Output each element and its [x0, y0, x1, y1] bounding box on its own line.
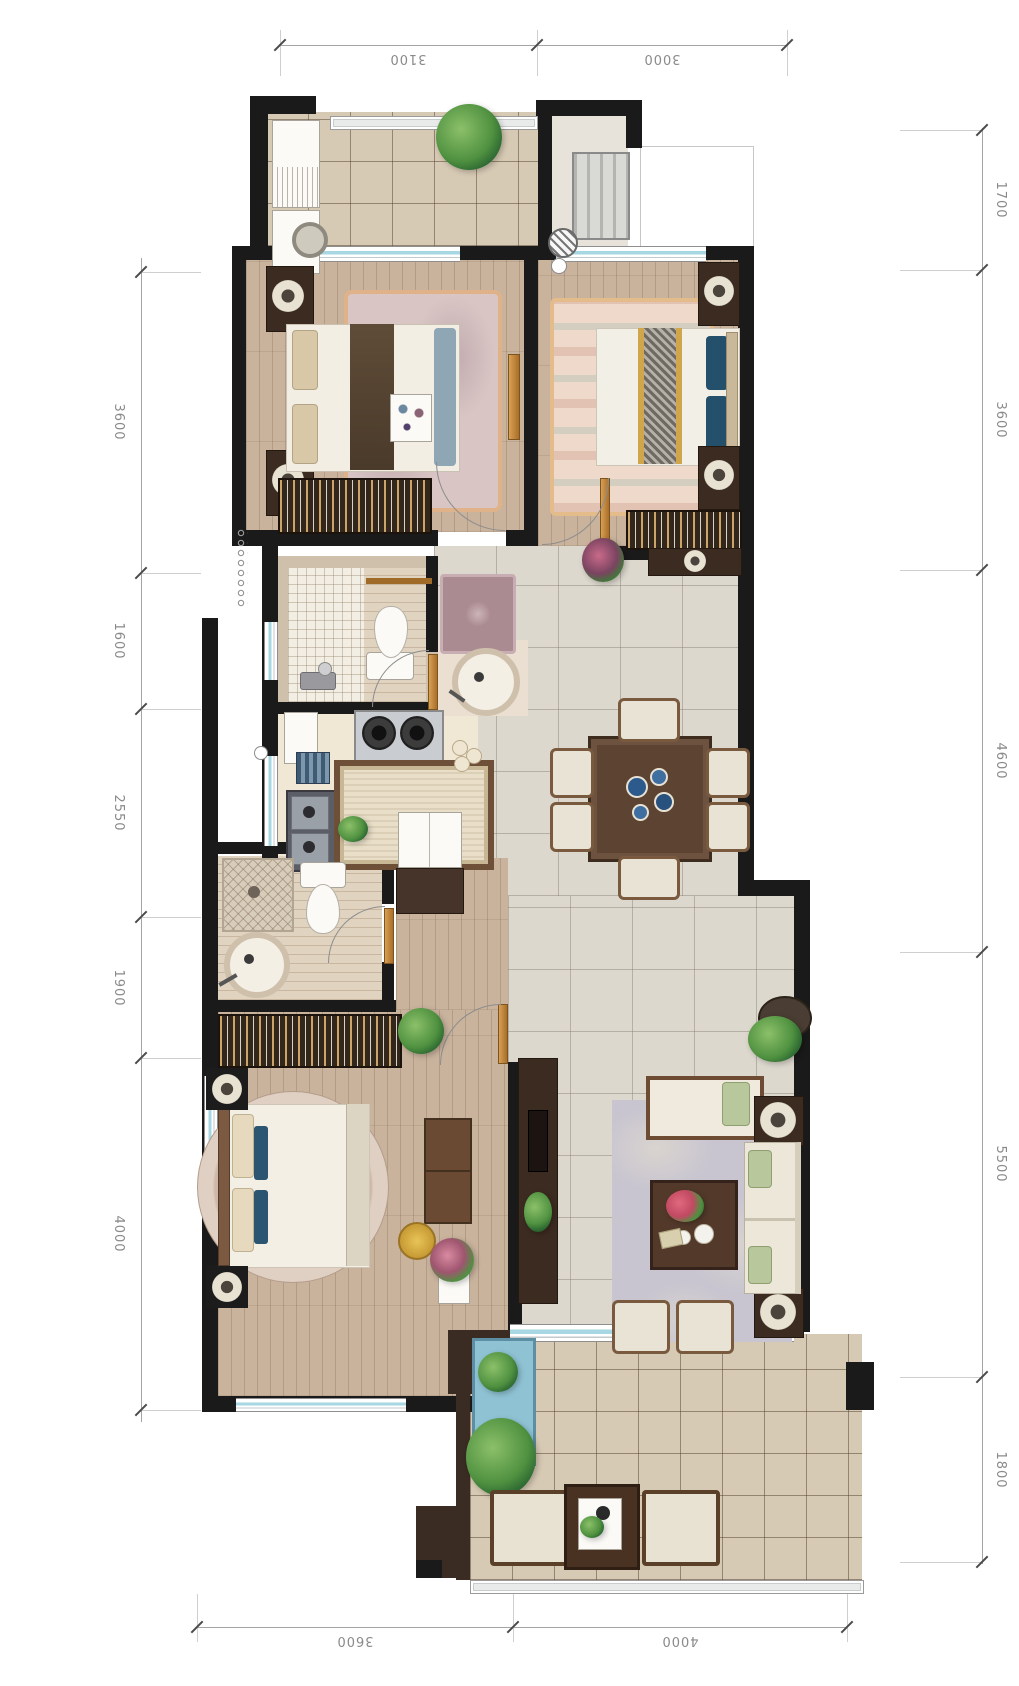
wall-pillar-se — [846, 1362, 874, 1410]
dim-ext — [537, 30, 538, 76]
dim-ext — [141, 573, 201, 574]
dim-label-3000: 3000 — [602, 50, 722, 66]
entry-porch — [640, 146, 754, 248]
kitchen-cart — [398, 812, 462, 868]
wall — [626, 100, 642, 148]
plant-north-balcony — [436, 104, 502, 170]
dining-chair — [618, 856, 680, 900]
dim-line-right — [982, 128, 983, 1564]
wall — [202, 1000, 396, 1012]
dim-label-l-3600: 3600 — [110, 362, 126, 482]
dim-ext — [900, 570, 982, 571]
pillow — [292, 404, 318, 464]
wall-bedroom-divider — [524, 260, 538, 546]
bathroom-2-basin — [224, 932, 290, 998]
tv-plant — [524, 1192, 552, 1232]
wall — [506, 530, 538, 546]
dim-ext — [280, 30, 281, 76]
wardrobe-master — [218, 1014, 402, 1068]
wall — [538, 116, 552, 246]
jar — [454, 756, 470, 772]
door-leaf-bathroom-1 — [428, 654, 438, 710]
dining-plate — [626, 776, 648, 798]
dim-label-r-1800: 1800 — [992, 1410, 1008, 1530]
sofa-pillow — [748, 1150, 772, 1188]
towel-bar — [366, 578, 432, 584]
wardrobe-bedroom-3 — [626, 510, 742, 550]
pillow-navy — [706, 396, 728, 450]
wall — [250, 96, 268, 246]
dim-label-r-4600: 4600 — [992, 701, 1008, 821]
console-bowl — [684, 550, 706, 572]
shower-fixture — [300, 672, 336, 690]
dining-plate — [632, 804, 649, 821]
balcony-armchair — [490, 1490, 568, 1566]
hall-cabinet — [396, 868, 464, 914]
dim-label-r-5500: 5500 — [992, 1104, 1008, 1224]
window-master-south — [236, 1398, 406, 1412]
toilet-bowl — [306, 884, 340, 934]
sofa-pillow — [748, 1246, 772, 1284]
stove-burner — [362, 716, 396, 750]
dining-chair — [550, 748, 594, 798]
entry-circle-symbol — [551, 258, 567, 274]
sink-drain — [303, 841, 315, 853]
dim-ext — [787, 30, 788, 76]
dim-ext — [900, 1377, 982, 1378]
headboard — [726, 332, 738, 464]
wall-step — [738, 880, 810, 896]
door-stop-hatch — [548, 228, 578, 258]
wardrobe-bedroom-2 — [278, 478, 432, 534]
laundry-cabinet — [272, 120, 320, 208]
door-leaf-bedroom-2 — [508, 354, 520, 440]
dining-plate — [650, 768, 668, 786]
basin-drain — [244, 954, 254, 964]
dim-ext — [141, 1410, 201, 1411]
coffee-table-plate — [694, 1224, 714, 1244]
pillow — [232, 1114, 254, 1178]
tv-screen — [528, 1110, 548, 1172]
hall-flowers — [582, 538, 624, 582]
duvet-fold — [346, 1104, 369, 1266]
dim-line-bottom — [197, 1627, 847, 1628]
window-kitchen-lower — [264, 756, 278, 846]
dining-chair — [618, 698, 680, 742]
side-table-tray — [760, 1294, 796, 1330]
dim-label-4000b: 4000 — [620, 1632, 740, 1648]
bed-tray — [390, 394, 432, 442]
dining-plate — [654, 792, 674, 812]
dim-label-3100: 3100 — [348, 50, 468, 66]
stove-burner — [400, 716, 434, 750]
dining-table — [588, 736, 712, 862]
pipe-coil-symbol — [236, 528, 248, 608]
dim-ext — [141, 709, 201, 710]
window-kitchen-upper — [264, 622, 278, 680]
washer-door — [292, 222, 328, 258]
dim-label-l-2550: 2550 — [110, 753, 126, 873]
wall — [232, 246, 246, 546]
dim-label-r-1700: 1700 — [992, 140, 1008, 260]
dining-chair — [550, 802, 594, 852]
dim-ext — [900, 1562, 982, 1563]
balcony-south-rail — [470, 1580, 864, 1594]
lounge-chair — [676, 1300, 734, 1354]
bed-throw-blue — [434, 328, 456, 466]
window-bedroom-3 — [556, 246, 706, 262]
drain-symbol — [254, 746, 268, 760]
bed-runner — [350, 324, 394, 470]
wall — [426, 556, 438, 652]
pillow-navy — [706, 336, 728, 390]
tv-cabinet — [518, 1058, 558, 1304]
kitchen-greens — [338, 816, 368, 842]
dim-ext — [900, 270, 982, 271]
dresser — [424, 1118, 472, 1224]
balcony-armchair — [642, 1490, 720, 1566]
headboard-master — [218, 1106, 230, 1266]
bed-gold-runner — [638, 328, 682, 464]
hall-rug — [440, 574, 516, 654]
dish-rack — [296, 752, 330, 784]
pillow-navy — [254, 1126, 268, 1180]
dining-chair — [706, 748, 750, 798]
flowers-master — [430, 1238, 474, 1282]
door-leaf-bathroom-2 — [384, 908, 394, 964]
pillow — [232, 1188, 254, 1252]
dim-ext — [900, 130, 982, 131]
dim-label-l-1900: 1900 — [110, 928, 126, 1048]
sink-drain — [303, 806, 315, 818]
vanity-basin — [452, 648, 520, 716]
side-table-tray — [760, 1102, 796, 1138]
balcony-north-rail — [330, 116, 538, 130]
radiator-cabinet — [572, 152, 630, 240]
dim-line-left — [141, 258, 142, 1422]
floor-plan-sheet: 3100 3000 3600 4000 3600 1600 2550 1900 … — [0, 0, 1019, 1686]
dim-ext — [141, 917, 201, 918]
pillow — [292, 330, 318, 390]
dim-ext — [197, 1594, 198, 1642]
table-lamp — [272, 280, 304, 312]
dim-label-l-1600: 1600 — [110, 581, 126, 701]
tray-greens — [580, 1516, 604, 1538]
basin-drain — [474, 672, 484, 682]
floor-plant — [748, 1016, 802, 1062]
dim-ext — [513, 1594, 514, 1642]
dining-chair — [706, 802, 750, 852]
dim-label-l-4000: 4000 — [110, 1174, 126, 1294]
table-lamp — [212, 1272, 242, 1302]
table-lamp — [704, 276, 734, 306]
lounge-chair — [612, 1300, 670, 1354]
dim-label-r-3600: 3600 — [992, 360, 1008, 480]
table-lamp — [212, 1074, 242, 1104]
plant-master — [398, 1008, 444, 1054]
shower-drain — [248, 886, 260, 898]
dim-ext — [900, 952, 982, 953]
daybed-pillow — [722, 1082, 750, 1126]
trough-plant — [478, 1352, 518, 1392]
dim-ext — [141, 272, 201, 273]
pillow-navy — [254, 1190, 268, 1244]
coffee-table-flowers — [666, 1190, 704, 1222]
shower-head — [318, 662, 332, 676]
plant-south-balcony — [466, 1418, 536, 1496]
dim-label-3600b: 3600 — [295, 1632, 415, 1648]
wall — [416, 1560, 442, 1578]
dim-ext — [141, 1058, 201, 1059]
table-lamp — [704, 460, 734, 490]
